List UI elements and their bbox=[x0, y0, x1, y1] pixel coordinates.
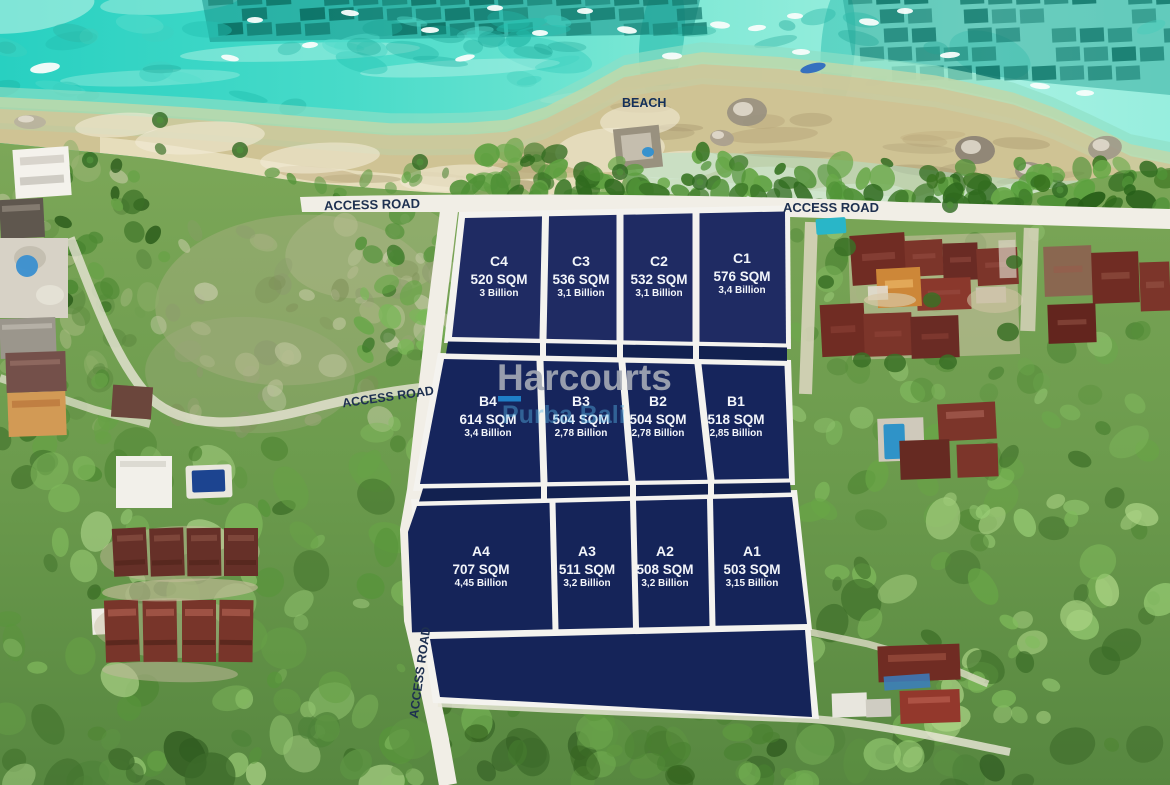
svg-text:520 SQM: 520 SQM bbox=[470, 272, 527, 287]
svg-text:2,78 Billion: 2,78 Billion bbox=[555, 428, 608, 439]
svg-text:A3: A3 bbox=[578, 543, 596, 559]
svg-text:707 SQM: 707 SQM bbox=[452, 562, 509, 577]
svg-text:C2: C2 bbox=[650, 253, 668, 269]
svg-text:518 SQM: 518 SQM bbox=[707, 412, 764, 427]
svg-text:B4: B4 bbox=[479, 393, 497, 409]
svg-text:ACCESS ROAD: ACCESS ROAD bbox=[324, 196, 420, 214]
svg-text:C3: C3 bbox=[572, 253, 590, 269]
svg-text:2,85 Billion: 2,85 Billion bbox=[710, 428, 763, 439]
svg-text:3,1 Billion: 3,1 Billion bbox=[635, 288, 682, 299]
svg-text:2,78 Billion: 2,78 Billion bbox=[632, 428, 685, 439]
svg-text:A1: A1 bbox=[743, 543, 761, 559]
svg-text:Harcourts: Harcourts bbox=[497, 357, 672, 398]
svg-text:B1: B1 bbox=[727, 393, 745, 409]
svg-text:532 SQM: 532 SQM bbox=[630, 272, 687, 287]
svg-text:Purba Bali: Purba Bali bbox=[502, 401, 626, 429]
svg-text:576 SQM: 576 SQM bbox=[713, 269, 770, 284]
svg-text:4,45 Billion: 4,45 Billion bbox=[455, 578, 508, 589]
svg-text:3,2 Billion: 3,2 Billion bbox=[563, 578, 610, 589]
svg-text:503 SQM: 503 SQM bbox=[723, 562, 780, 577]
svg-text:A2: A2 bbox=[656, 543, 674, 559]
svg-text:3,2 Billion: 3,2 Billion bbox=[641, 578, 688, 589]
svg-text:C1: C1 bbox=[733, 250, 751, 266]
svg-text:536 SQM: 536 SQM bbox=[552, 272, 609, 287]
svg-text:BEACH: BEACH bbox=[622, 96, 666, 110]
svg-text:C4: C4 bbox=[490, 253, 508, 269]
svg-text:ACCESS ROAD: ACCESS ROAD bbox=[783, 200, 879, 215]
svg-text:511 SQM: 511 SQM bbox=[559, 562, 615, 577]
svg-text:508 SQM: 508 SQM bbox=[636, 562, 693, 577]
svg-text:3 Billion: 3 Billion bbox=[480, 288, 519, 299]
svg-text:3,4 Billion: 3,4 Billion bbox=[464, 428, 511, 439]
svg-text:504 SQM: 504 SQM bbox=[629, 412, 686, 427]
svg-text:3,4 Billion: 3,4 Billion bbox=[718, 285, 765, 296]
svg-text:3,1 Billion: 3,1 Billion bbox=[557, 288, 604, 299]
svg-text:3,15 Billion: 3,15 Billion bbox=[726, 578, 779, 589]
svg-text:A4: A4 bbox=[472, 543, 490, 559]
